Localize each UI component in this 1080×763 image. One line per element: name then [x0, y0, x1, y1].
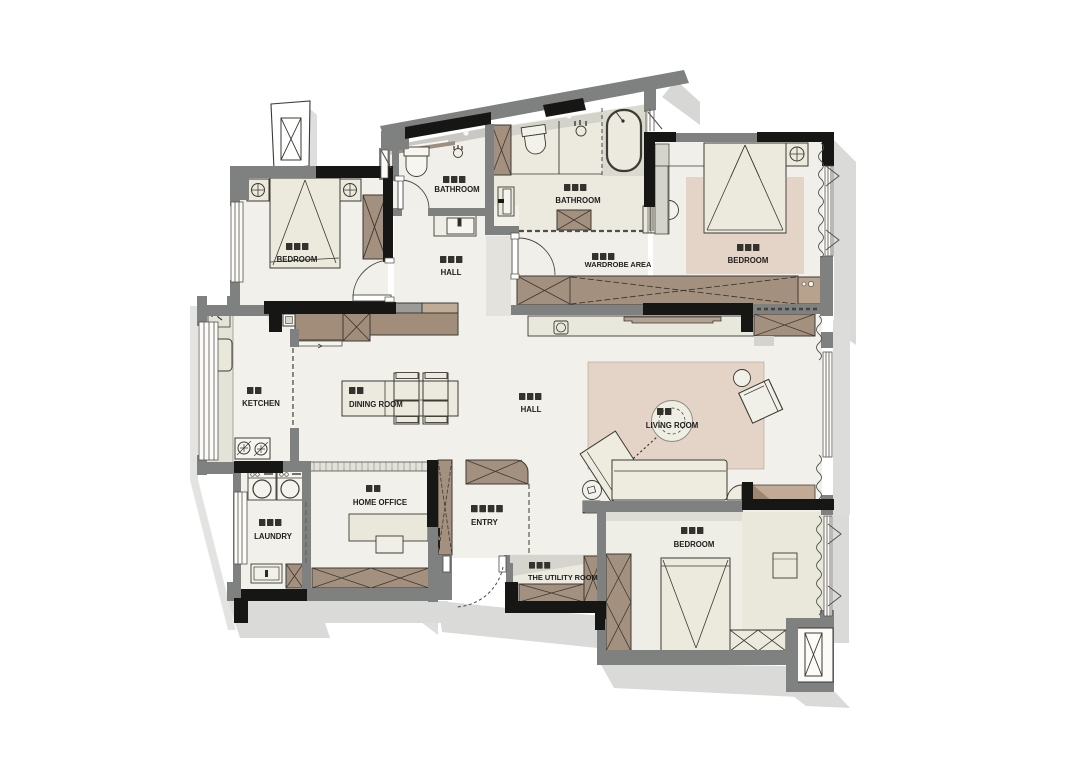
svg-text:DINING ROOM: DINING ROOM — [349, 400, 403, 409]
svg-text:HALL: HALL — [441, 268, 462, 277]
svg-text:LIVING ROOM: LIVING ROOM — [646, 421, 698, 430]
svg-text:HALL: HALL — [521, 405, 542, 414]
svg-text:BATHROOM: BATHROOM — [434, 185, 479, 194]
svg-text:HOME OFFICE: HOME OFFICE — [353, 498, 407, 507]
svg-text:BEDROOM: BEDROOM — [277, 255, 318, 264]
svg-text:BEDROOM: BEDROOM — [674, 540, 715, 549]
svg-text:LAUNDRY: LAUNDRY — [254, 532, 293, 541]
svg-text:BEDROOM: BEDROOM — [728, 256, 769, 265]
svg-text:BATHROOM: BATHROOM — [555, 196, 600, 205]
svg-text:KETCHEN: KETCHEN — [242, 399, 280, 408]
svg-text:WARDROBE AREA: WARDROBE AREA — [585, 260, 652, 269]
svg-text:ENTRY: ENTRY — [471, 518, 498, 527]
svg-text:THE UTILITY ROOM: THE UTILITY ROOM — [528, 573, 598, 582]
